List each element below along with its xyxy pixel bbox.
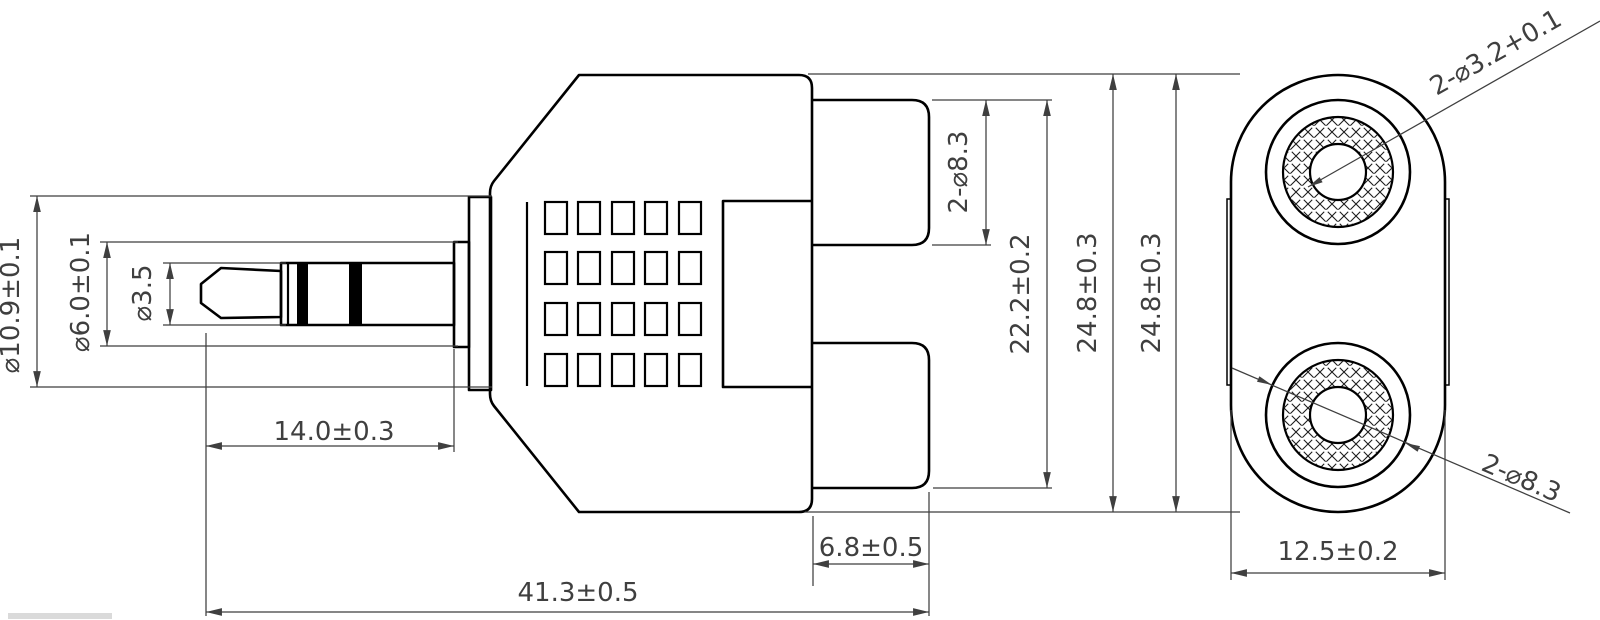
label-body-width-side: 12.5±0.2 <box>1277 537 1398 567</box>
technical-drawing-canvas: ⌀10.9±0.1 ⌀6.0±0.1 ⌀3.5 14.0±0.3 41.3±0.… <box>0 0 1600 620</box>
adapter-dimension-drawing: ⌀10.9±0.1 ⌀6.0±0.1 ⌀3.5 14.0±0.3 41.3±0.… <box>0 0 1600 620</box>
drawing-background <box>0 0 1600 620</box>
label-body-height-side: 24.8±0.3 <box>1137 232 1167 353</box>
label-overall-length: 41.3±0.5 <box>517 578 638 608</box>
label-rca-barrel-front: 2-⌀8.3 <box>944 131 974 214</box>
label-body-height-front: 24.8±0.3 <box>1073 232 1103 353</box>
label-rca-protrusion: 6.8±0.5 <box>819 533 923 563</box>
insulator-ring-1 <box>297 263 308 325</box>
cropped-watermark-fragment <box>8 613 112 619</box>
label-tip-diameter: ⌀3.5 <box>128 264 158 321</box>
label-plug-length: 14.0±0.3 <box>273 417 394 447</box>
label-collar-diameter: ⌀6.0±0.1 <box>66 232 96 352</box>
insulator-ring-2 <box>349 263 362 325</box>
label-rca-outer-span: 22.2±0.2 <box>1006 233 1036 354</box>
label-flange-diameter: ⌀10.9±0.1 <box>0 237 26 374</box>
